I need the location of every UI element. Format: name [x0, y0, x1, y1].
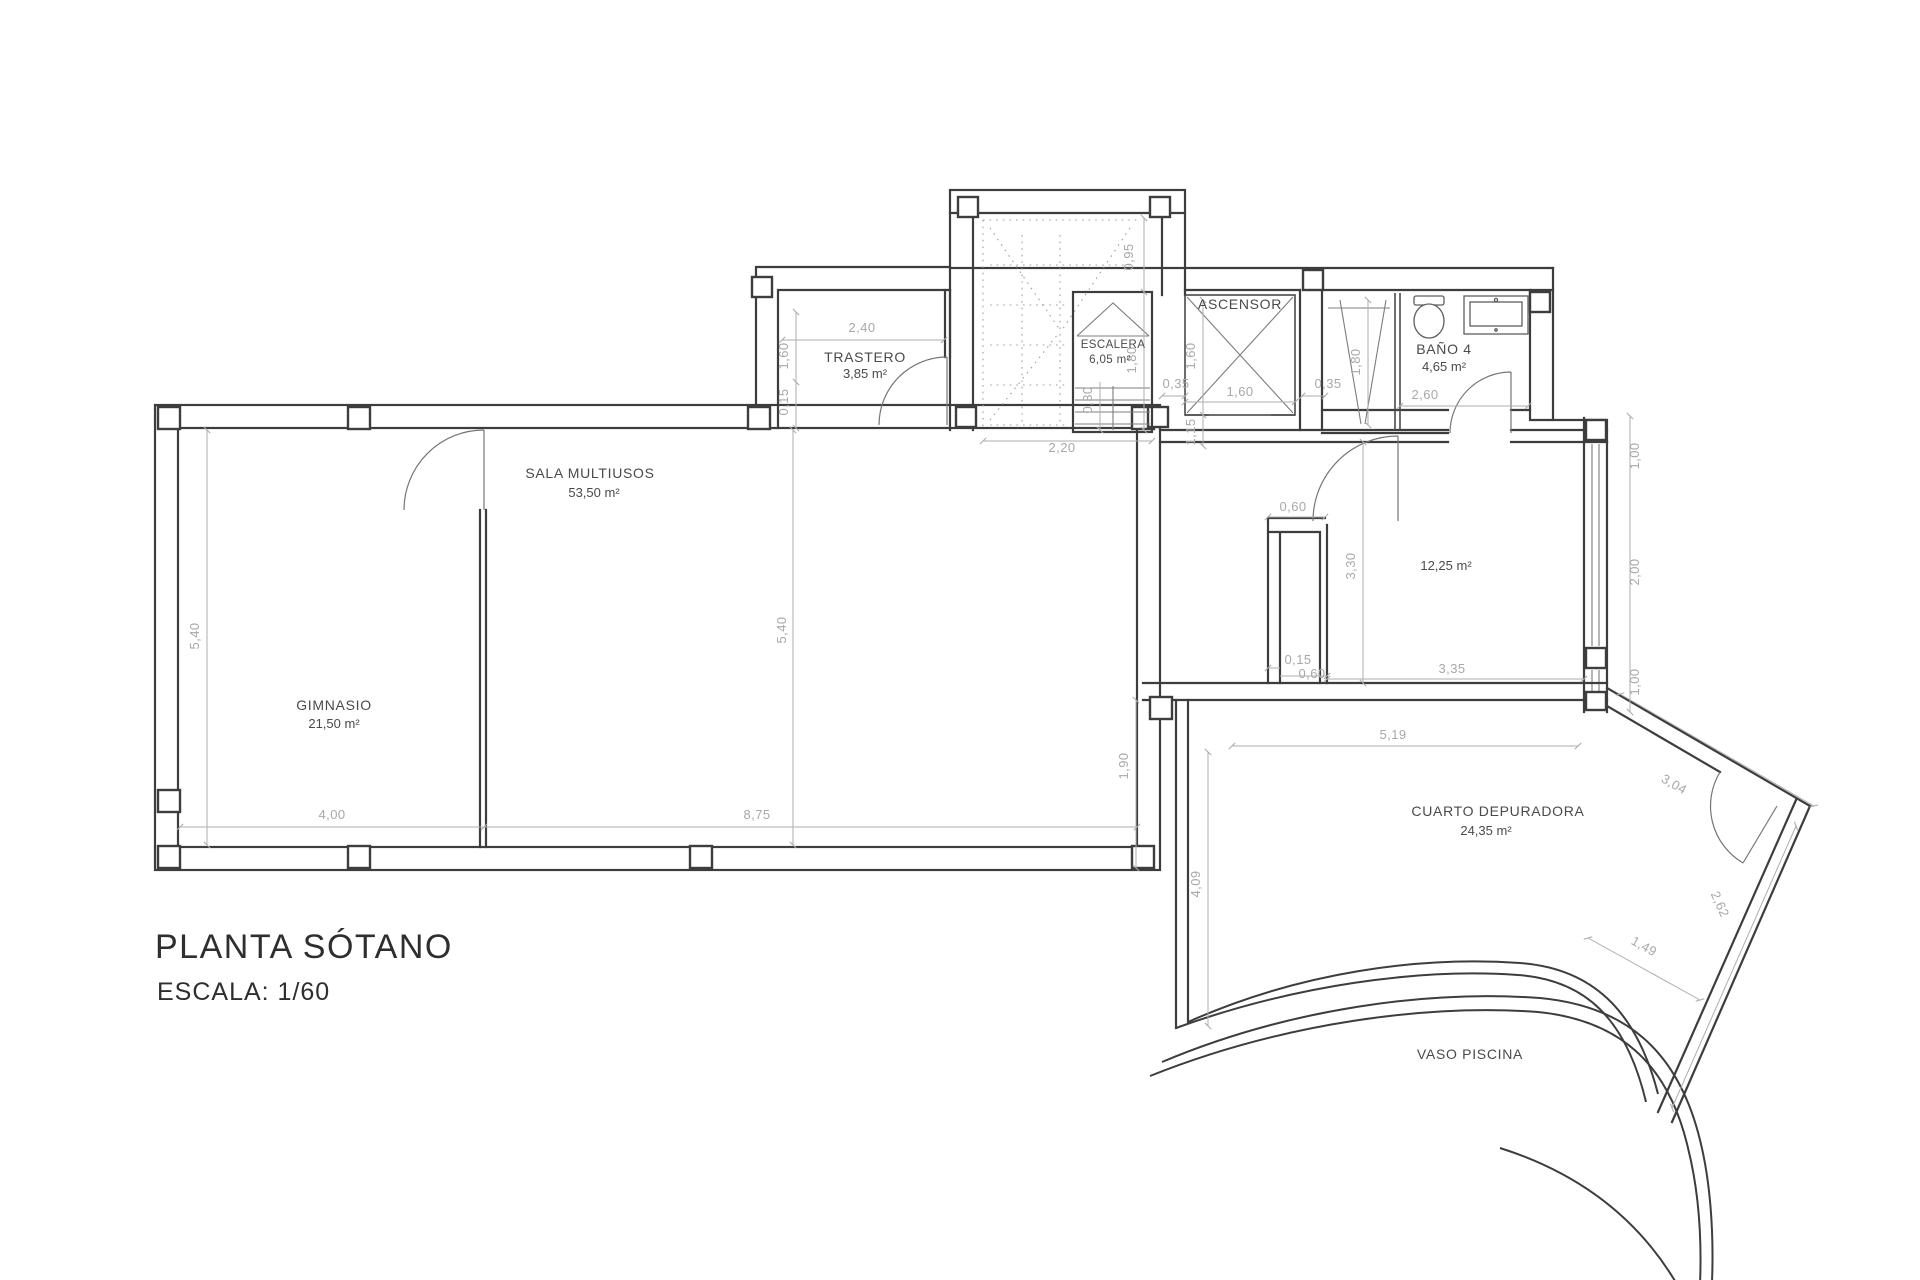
dim-notch-bottom: 0,60 [1299, 666, 1326, 681]
stair-projection-dotted [983, 220, 1138, 430]
floorplan-svg: 2,40 1,60 0,15 0,95 2,20 1,80 0,30 1,60 … [0, 0, 1920, 1280]
dim-shower: 1,80 [1348, 349, 1363, 376]
dim-ascensor-width: 1,60 [1227, 384, 1254, 399]
door-trastero [879, 357, 947, 425]
room-area-bano4: 4,65 m² [1422, 359, 1467, 374]
room-label-depuradora: CUARTO DEPURADORA [1411, 803, 1584, 819]
dim-main-height-left: 5,40 [187, 623, 202, 650]
dim-depuradora-top: 5,19 [1380, 727, 1407, 742]
dim-room12-width: 3,35 [1439, 661, 1466, 676]
title-block: PLANTA SÓTANO ESCALA: 1/60 [155, 928, 453, 1006]
pool-walls [1150, 961, 1713, 1280]
sink-cabinet [1464, 296, 1528, 334]
plan-title: PLANTA SÓTANO [155, 928, 453, 966]
dim-depuradora-offset: 1,90 [1116, 753, 1131, 780]
dim-escalera-step: 0,30 [1080, 387, 1095, 414]
dim-window-top: 1,00 [1627, 443, 1642, 470]
dim-gimnasio-width: 4,00 [319, 807, 346, 822]
toilet [1414, 296, 1444, 338]
room-area-trastero: 3,85 m² [843, 366, 888, 381]
dim-trastero-width: 2,40 [849, 320, 876, 335]
room-area-sala12: 12,25 m² [1420, 558, 1472, 573]
dimension-labels: 2,40 1,60 0,15 0,95 2,20 1,80 0,30 1,60 … [187, 244, 1732, 960]
room-label-trastero: TRASTERO [824, 349, 906, 365]
floorplan-page: 2,40 1,60 0,15 0,95 2,20 1,80 0,30 1,60 … [0, 0, 1920, 1280]
dim-bano-width: 2,60 [1412, 387, 1439, 402]
columns [158, 197, 1606, 868]
room-area-escalera: 6,05 m² [1089, 354, 1131, 366]
dim-window-bottom: 1,00 [1627, 669, 1642, 696]
dim-depuradora-diag-top: 3,04 [1659, 771, 1690, 797]
dim-stair-width: 2,20 [1049, 440, 1076, 455]
door-bano [1450, 372, 1511, 433]
plan-scale: ESCALA: 1/60 [157, 978, 330, 1006]
dim-room12-height: 3,30 [1343, 553, 1358, 580]
door-depuradora [1710, 772, 1777, 863]
dim-ascensor-gap-right: 0,35 [1315, 376, 1342, 391]
dim-notch-top: 0,60 [1280, 499, 1307, 514]
room-area-gimnasio: 21,50 m² [308, 716, 360, 731]
dim-window-mid: 2,00 [1627, 559, 1642, 586]
dim-depuradora-diag-bottom: 1,49 [1629, 933, 1660, 959]
dim-ascensor-height: 1,60 [1183, 343, 1198, 370]
door-sala-gimnasio [404, 430, 484, 510]
room-label-bano4: BAÑO 4 [1416, 341, 1472, 357]
dim-stair-top: 0,95 [1121, 244, 1136, 271]
main-block-walls [155, 405, 1160, 870]
dim-notch-wall: 0,15 [1285, 652, 1312, 667]
room-label-vaso-piscina: VASO PISCINA [1417, 1046, 1523, 1062]
dim-depuradora-diag-right: 2,62 [1708, 889, 1733, 920]
dim-sala-width: 8,75 [744, 807, 771, 822]
dim-main-height-mid: 5,40 [774, 617, 789, 644]
room-label-ascensor: ASCENSOR [1198, 296, 1282, 312]
room-label-gimnasio: GIMNASIO [296, 697, 372, 713]
room-label-sala-multiusos: SALA MULTIUSOS [525, 465, 654, 481]
dim-ascensor-gap-left: 0,35 [1163, 376, 1190, 391]
dim-trastero-height: 1,60 [776, 343, 791, 370]
room-area-depuradora: 24,35 m² [1460, 823, 1512, 838]
door-room12 [1313, 436, 1398, 521]
room-label-escalera: ESCALERA [1081, 339, 1146, 351]
dim-depuradora-height: 4,09 [1188, 871, 1203, 898]
room-area-sala-multiusos: 53,50 m² [568, 485, 620, 500]
dim-ascensor-below: 1,15 [1183, 419, 1198, 446]
dim-trastero-wall: 0,15 [776, 389, 791, 416]
room12-walls [1143, 418, 1607, 712]
